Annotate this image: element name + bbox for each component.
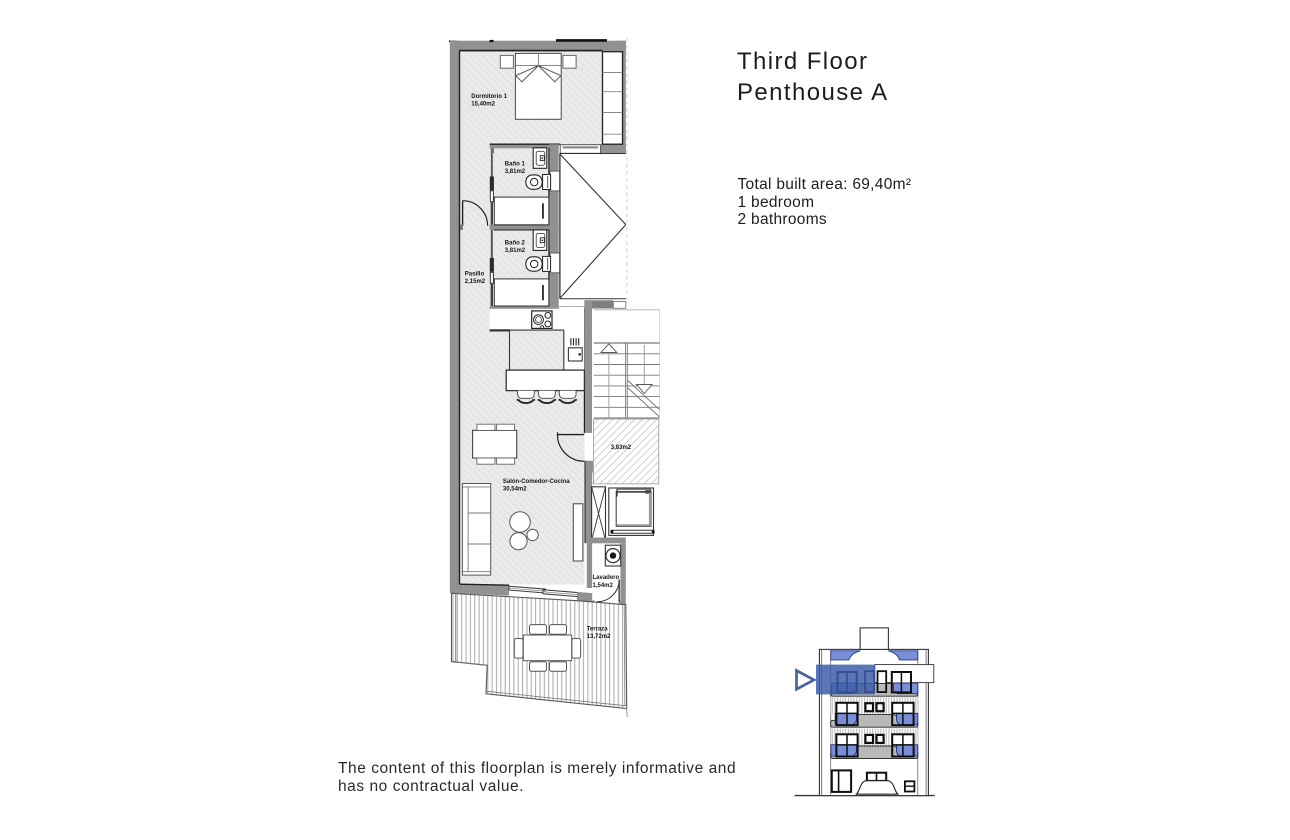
svg-text:Baño 1: Baño 1 [505, 161, 526, 167]
svg-text:Terraza: Terraza [587, 626, 609, 632]
svg-text:Salón-Comedor-Cocina: Salón-Comedor-Cocina [503, 479, 570, 485]
svg-text:Dormitorio 1: Dormitorio 1 [471, 94, 507, 100]
svg-text:3,81m2: 3,81m2 [505, 248, 526, 254]
svg-text:13,72m2: 13,72m2 [587, 634, 611, 640]
svg-text:15,40m2: 15,40m2 [471, 102, 495, 108]
svg-text:30,54m2: 30,54m2 [503, 487, 527, 493]
svg-text:Baño 2: Baño 2 [505, 240, 526, 246]
svg-text:Lavadero: Lavadero [593, 575, 620, 581]
svg-text:2,15m2: 2,15m2 [465, 279, 486, 285]
svg-text:1,54m2: 1,54m2 [593, 583, 614, 589]
svg-text:Pasillo: Pasillo [465, 271, 485, 277]
svg-text:3,83m2: 3,83m2 [611, 445, 632, 451]
svg-text:3,81m2: 3,81m2 [505, 169, 526, 175]
